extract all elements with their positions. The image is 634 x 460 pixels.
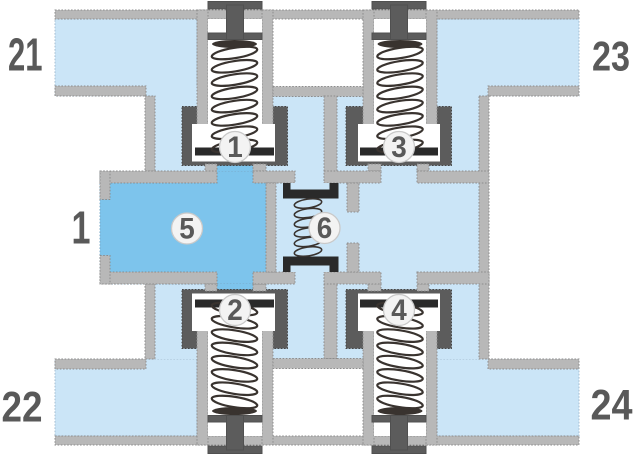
svg-text:4: 4: [391, 294, 407, 327]
svg-text:22: 22: [2, 385, 43, 432]
svg-text:23: 23: [592, 33, 630, 80]
svg-text:5: 5: [179, 213, 195, 246]
svg-text:24: 24: [591, 382, 633, 430]
svg-text:2: 2: [227, 294, 243, 327]
svg-text:1: 1: [227, 131, 243, 164]
svg-text:21: 21: [8, 29, 43, 81]
svg-text:1: 1: [72, 202, 91, 254]
svg-text:3: 3: [391, 131, 407, 164]
svg-text:6: 6: [317, 212, 333, 245]
